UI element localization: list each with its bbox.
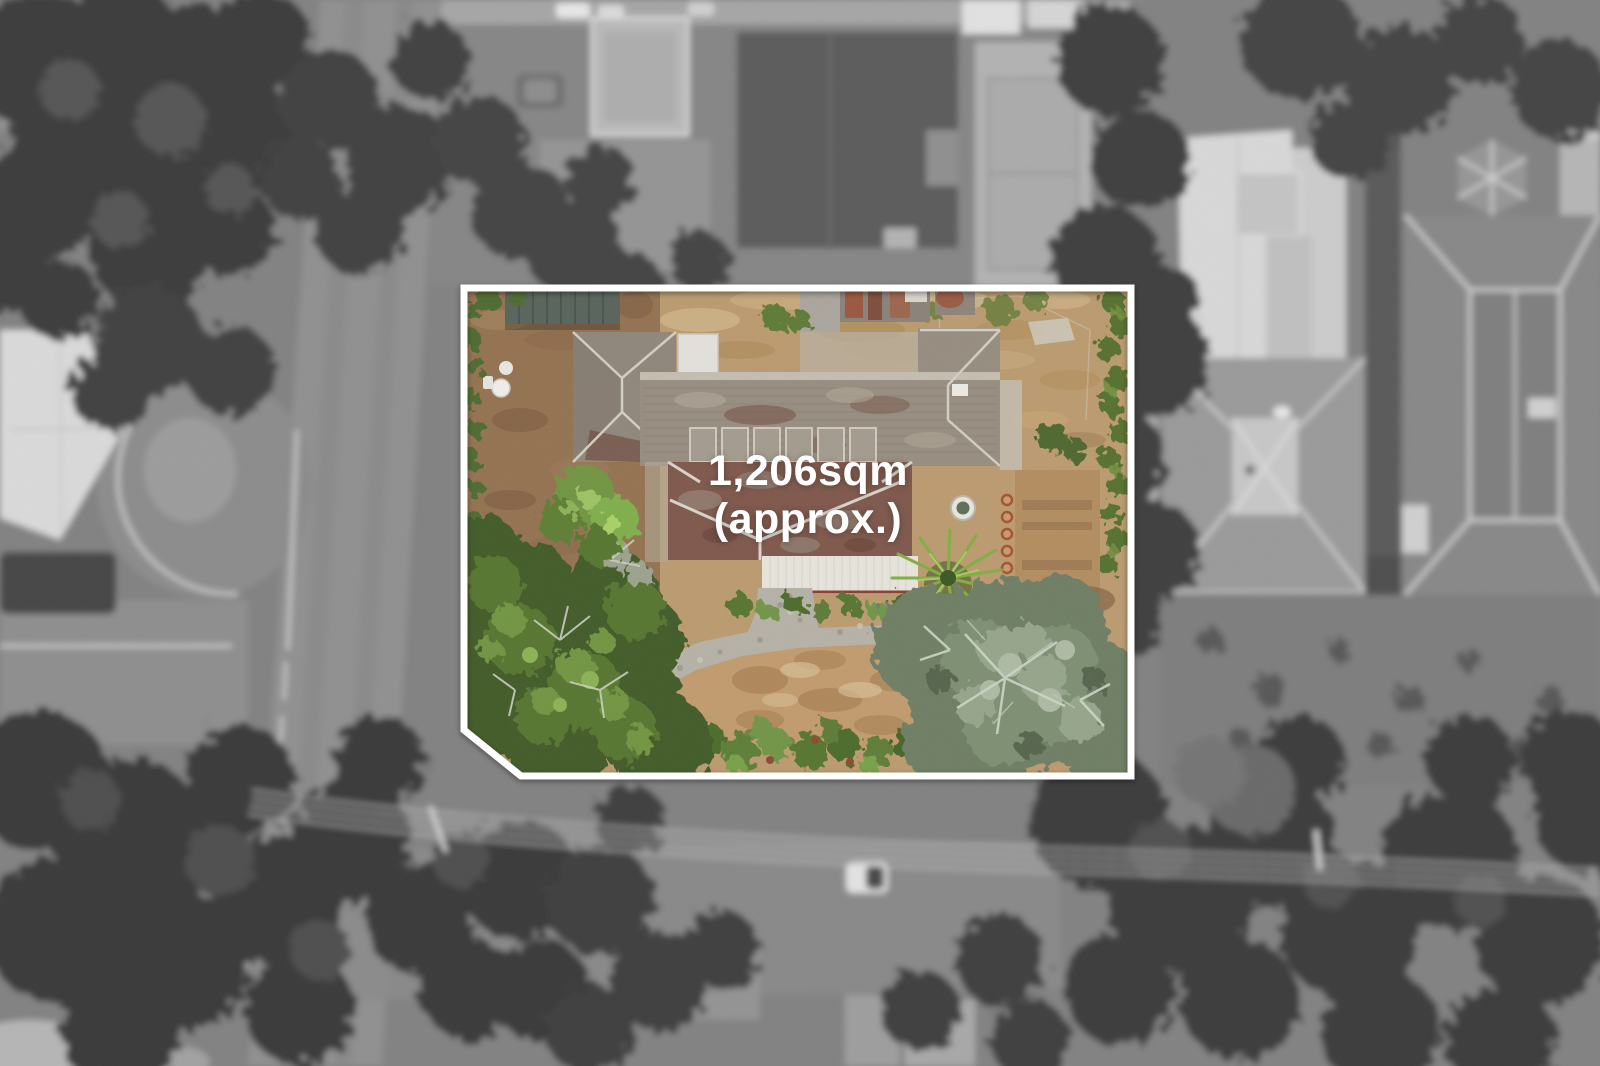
area-value: 1,206sqm <box>708 447 908 495</box>
aerial-property-photo: 1,206sqm (approx.) <box>0 0 1600 1066</box>
area-approx: (approx.) <box>708 495 908 543</box>
area-label: 1,206sqm (approx.) <box>708 447 908 543</box>
